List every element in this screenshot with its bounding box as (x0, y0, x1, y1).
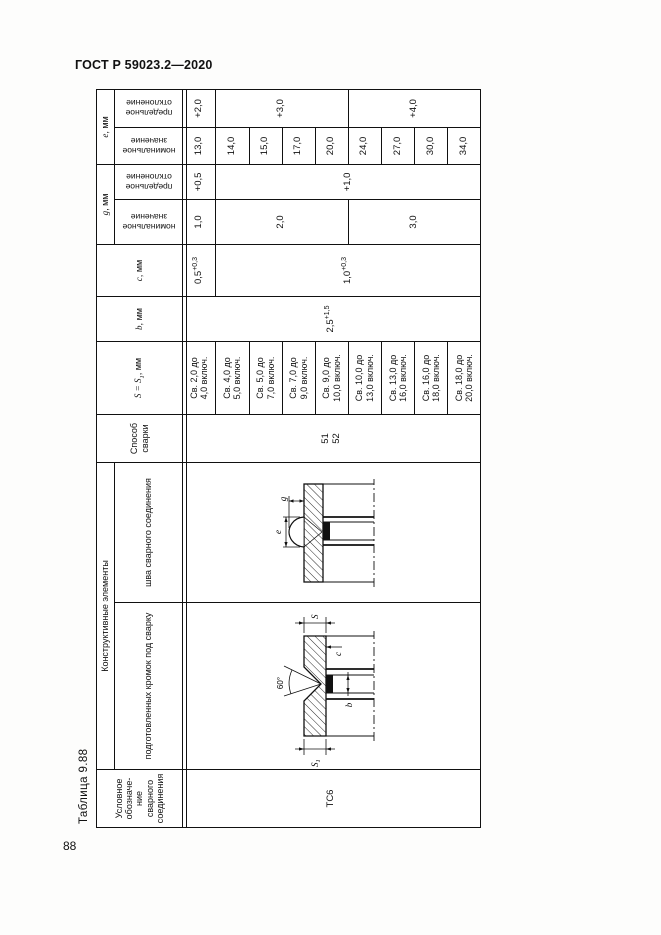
cell-s-range: Св. 16,0 до 18,0 включ. (415, 341, 448, 414)
cell-e-limit: +2,0 (183, 89, 216, 127)
cell-e-nominal: 24,0 (348, 127, 382, 164)
weld-bead (289, 517, 304, 547)
header-constructive-elements: Конструктивные элементы (97, 462, 115, 769)
s1-arrow (326, 747, 331, 750)
s-arrow (299, 621, 304, 624)
cell-g-nominal: 2,0 (216, 199, 349, 244)
cell-s-range: Св. 5,0 до 7,0 включ. (249, 341, 282, 414)
weld-joint-table: Условное обозначе- ние сварного соединен… (96, 89, 481, 828)
cell-e-nominal: 20,0 (315, 127, 348, 164)
header-weld-seam: шва сварного соединения (115, 462, 183, 602)
cell-e-nominal: 15,0 (249, 127, 282, 164)
e-arrow (284, 542, 287, 547)
seam-drawing: e g (183, 464, 480, 602)
header-s: S = S1, мм (97, 341, 183, 414)
cell-e-nominal: 34,0 (448, 127, 481, 164)
header-g: g, мм (97, 164, 115, 244)
rotated-table-block: Таблица 9.88 Условное обозначе- ние свар… (78, 90, 481, 828)
root-weld-fill (323, 522, 330, 540)
dim-label-e: e (273, 530, 283, 534)
header-designation: Условное обозначе- ние сварного соединен… (97, 770, 183, 828)
cell-c-value: 0,5+0,3 (183, 244, 216, 296)
header-prep-edges: подготовленных кромок под сварку (115, 603, 183, 770)
cell-e-nominal: 14,0 (216, 127, 250, 164)
root-gap-fill (326, 675, 333, 693)
cell-s-range: Св. 9,0 до 10,0 включ. (315, 341, 348, 414)
table-caption: Таблица 9.88 (78, 90, 96, 828)
b-arrow (346, 675, 349, 680)
cell-e-nominal: 13,0 (183, 127, 216, 164)
e-arrow (284, 517, 287, 522)
flange-plate-section (304, 484, 323, 582)
cell-e-nominal: 17,0 (282, 127, 315, 164)
table-wrapper: Условное обозначе- ние сварного соединен… (96, 90, 481, 828)
dim-label-b: b (344, 702, 354, 707)
cell-c-value: 1,0+0,3 (216, 244, 481, 296)
s-arrow (326, 621, 331, 624)
b-arrow (346, 688, 349, 693)
cell-s-range: Св. 2,0 до 4,0 включ. (183, 341, 216, 414)
cell-e-limit: +3,0 (216, 89, 349, 127)
dim-label-s: S (310, 614, 320, 619)
cell-s-range: Св. 13,0 до 16,0 включ. (382, 341, 415, 414)
c-arrow (326, 645, 331, 648)
dim-label-g: g (278, 496, 288, 501)
cell-e-nominal: 30,0 (415, 127, 448, 164)
header-e: e, мм (97, 89, 115, 164)
cell-e-limit: +4,0 (348, 89, 481, 127)
g-arrow (289, 499, 294, 502)
dim-label-s1: S1 (310, 759, 322, 767)
document-page: ГОСТ Р 59023.2—2020 88 Таблица 9.88 Усло… (0, 0, 661, 935)
header-e-limit: предельное отклонение (115, 89, 183, 127)
header-b: b, мм (97, 296, 183, 341)
cell-g-limit: +1,0 (216, 164, 481, 199)
cell-weld-method: 51 52 (183, 414, 481, 462)
cell-designation: ТС6 (183, 770, 481, 828)
header-g-nominal: номинальное значение (115, 199, 183, 244)
prep-drawing: b c 60° (183, 604, 480, 769)
page-number: 88 (63, 839, 76, 853)
cell-s-range: Св. 18,0 до 20,0 включ. (448, 341, 481, 414)
dim-label-angle: 60° (276, 677, 285, 689)
header-g-limit: предельное отклонение (115, 164, 183, 199)
g-arrow (300, 499, 305, 502)
cell-s-range: Св. 7,0 до 9,0 включ. (282, 341, 315, 414)
cell-s-range: Св. 10,0 до 13,0 включ. (348, 341, 382, 414)
cell-b-value: 2,5+1,5 (183, 296, 481, 341)
cell-g-nominal: 3,0 (348, 199, 481, 244)
header-double-line (186, 90, 187, 828)
header-weld-method: Способ сварки (97, 414, 183, 462)
angle-arc (289, 670, 292, 694)
cell-g-nominal: 1,0 (183, 199, 216, 244)
header-e-nominal: номинальное значение (115, 127, 183, 164)
cell-g-limit: +0,5 (183, 164, 216, 199)
header-c: c, мм (97, 244, 183, 296)
cell-prep-drawing: b c 60° (183, 603, 481, 770)
cell-s-range: Св. 4,0 до 5,0 включ. (216, 341, 250, 414)
cell-seam-drawing: e g (183, 462, 481, 602)
cell-e-nominal: 27,0 (382, 127, 415, 164)
doc-header: ГОСТ Р 59023.2—2020 (75, 58, 213, 72)
dim-label-c: c (333, 652, 343, 656)
s1-arrow (299, 747, 304, 750)
